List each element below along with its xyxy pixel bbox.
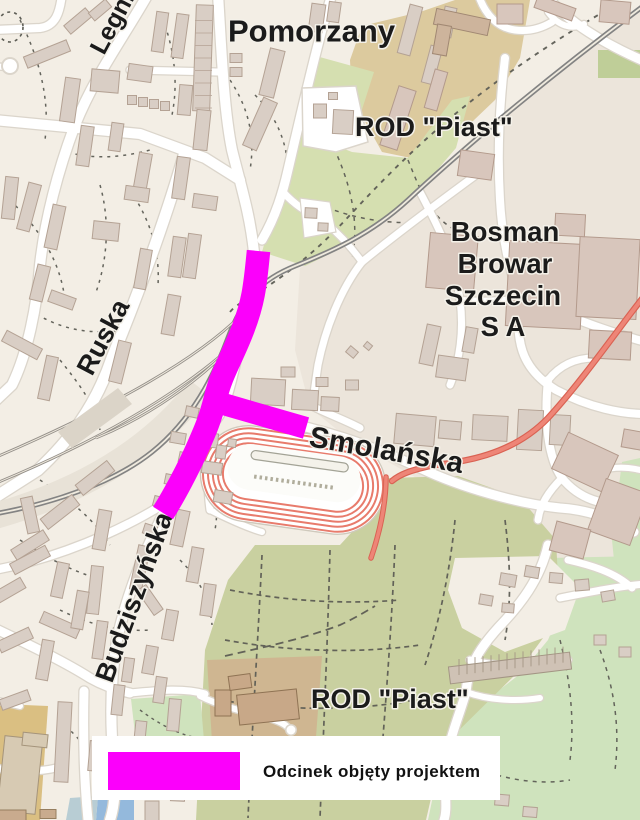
svg-text:ROD "Piast": ROD "Piast" xyxy=(355,112,513,142)
svg-text:Bosman: Bosman xyxy=(451,216,560,247)
svg-text:S A: S A xyxy=(481,311,526,342)
svg-text:ROD "Piast": ROD "Piast" xyxy=(311,684,469,714)
svg-text:Szczecin: Szczecin xyxy=(445,280,561,311)
svg-text:Browar: Browar xyxy=(458,248,553,279)
svg-text:Odcinek objęty projektem: Odcinek objęty projektem xyxy=(263,762,480,781)
svg-text:Pomorzany: Pomorzany xyxy=(228,14,396,49)
